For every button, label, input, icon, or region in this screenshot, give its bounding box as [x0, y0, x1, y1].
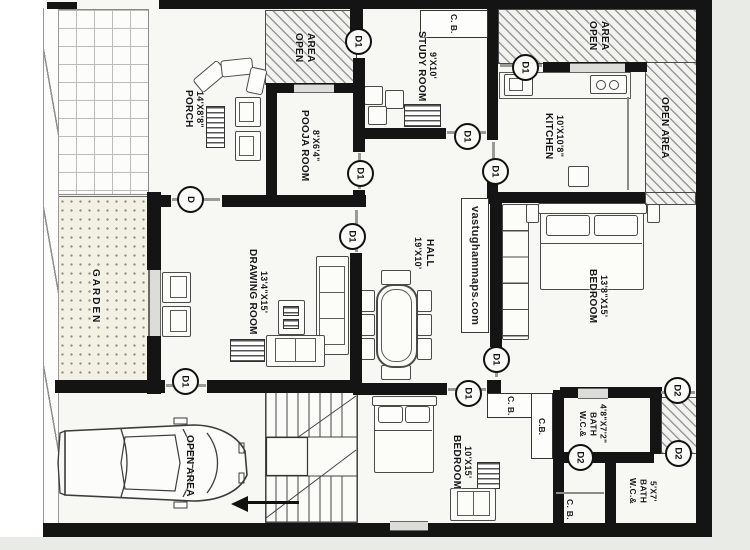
- border-bottom: [43, 523, 712, 537]
- hall-label: HALL19'X10': [412, 222, 435, 284]
- stair-direction-arrow: [231, 496, 248, 512]
- dining-table: [376, 284, 418, 368]
- wall: [207, 380, 353, 393]
- page-margin-bottom: [0, 537, 750, 550]
- door-marker-d1: D1: [345, 28, 372, 55]
- door-marker-d1: D1: [347, 160, 374, 187]
- wall: [650, 397, 661, 454]
- door-marker-d1: D1: [512, 54, 539, 81]
- border-right: [696, 0, 712, 537]
- stair-arrow-stem: [247, 501, 299, 504]
- kitchen-stool: [568, 166, 589, 187]
- bath2-label: W.C.&BATH5'X7': [628, 462, 659, 520]
- garden-area: [57, 196, 149, 382]
- cupboard-corridor: C. B.: [487, 393, 535, 418]
- bedroom1-side-table: [647, 204, 660, 223]
- bedroom2-bed: [372, 396, 436, 472]
- drawing-sofa-2seat: [266, 335, 325, 367]
- porch-label: PORCH14'X8'8": [182, 70, 205, 148]
- cupboard-tall: C.B.: [531, 393, 553, 459]
- window-hatch-bedroom1: [645, 192, 696, 205]
- door-marker-d1: D1: [483, 346, 510, 373]
- study-room-label: STUDY ROOM9'X10': [415, 26, 438, 106]
- wall: [353, 190, 365, 207]
- door-marker-d1: D1: [454, 123, 481, 150]
- open-area-label-parking: OPEN AREA: [183, 420, 195, 512]
- kitchen-counter-line: [627, 97, 629, 190]
- wall: [55, 380, 165, 393]
- study-chair: [364, 86, 383, 105]
- door-marker-d1: D1: [172, 368, 199, 395]
- wall: [222, 195, 366, 207]
- window-bottom-border: [390, 521, 428, 531]
- pooja-room-label: POOJA ROOM8'X6'4": [298, 98, 321, 193]
- border-top-left-seg: [47, 2, 77, 9]
- wall: [490, 197, 502, 347]
- porch-chair: [235, 131, 261, 161]
- wall: [147, 195, 171, 207]
- study-chair: [368, 106, 387, 125]
- bedroom1-side-table: [526, 204, 539, 223]
- window-pooja: [294, 84, 334, 93]
- door-marker-d1: D1: [482, 158, 509, 185]
- drawing-chair: [162, 306, 191, 337]
- door-marker-d2: D2: [664, 377, 691, 404]
- bedroom1-label: BEDROOM13'8"X15': [586, 243, 609, 350]
- dining-set: [360, 270, 430, 378]
- garden-label: GARDEN: [89, 252, 101, 342]
- car: [55, 413, 255, 513]
- wall: [560, 387, 662, 398]
- door-marker-d2: D2: [567, 444, 594, 471]
- drawing-chair: [162, 272, 191, 303]
- window-drawing-room: [149, 270, 161, 336]
- door-marker-d: D: [177, 186, 204, 213]
- wall: [350, 253, 362, 386]
- driveway-tiles: [57, 9, 149, 195]
- study-desk: [404, 104, 441, 127]
- kitchen-label: KITCHEN10'X10'8": [542, 100, 565, 172]
- cupboard-corner-label: C. B.: [565, 496, 575, 522]
- open-area-label-top-left: OPENAREA: [292, 22, 316, 74]
- floor-plan: PORCH14'X8'8" POOJA ROOM8'X6'4" STUDY RO…: [0, 0, 750, 550]
- study-chair: [385, 90, 404, 109]
- open-area-right-band: [645, 62, 698, 195]
- door-marker-d2: D2: [665, 440, 692, 467]
- divider-line: [556, 492, 604, 494]
- drawing-center-table: [278, 300, 305, 335]
- wall: [605, 462, 616, 523]
- wall: [353, 383, 447, 395]
- border-top: [159, 0, 701, 9]
- watermark-box: vastughammaps.com: [461, 198, 489, 333]
- wall: [266, 85, 277, 197]
- watermark-text: vastughammaps.com: [469, 206, 481, 325]
- open-area-label-top-right: OPENAREA: [586, 12, 610, 60]
- door-marker-d1: D1: [455, 380, 482, 407]
- porch-bench: [206, 106, 225, 148]
- bedroom2-label: BEDROOM10'X15': [450, 418, 473, 506]
- window-kitchen: [570, 63, 625, 73]
- page-margin-right: [712, 0, 750, 550]
- open-area-label-right-band: OPEN AREA: [658, 72, 670, 184]
- kitchen-stove: [590, 75, 627, 94]
- door-marker-d1: D1: [339, 223, 366, 250]
- bedroom1-wardrobe: [502, 204, 529, 340]
- porch-chair: [235, 97, 261, 127]
- bedroom2-dresser: [477, 462, 500, 489]
- drawing-room-label: DRAWING ROOM13'4"X15': [246, 236, 269, 348]
- wall: [487, 0, 498, 140]
- wall: [358, 128, 446, 139]
